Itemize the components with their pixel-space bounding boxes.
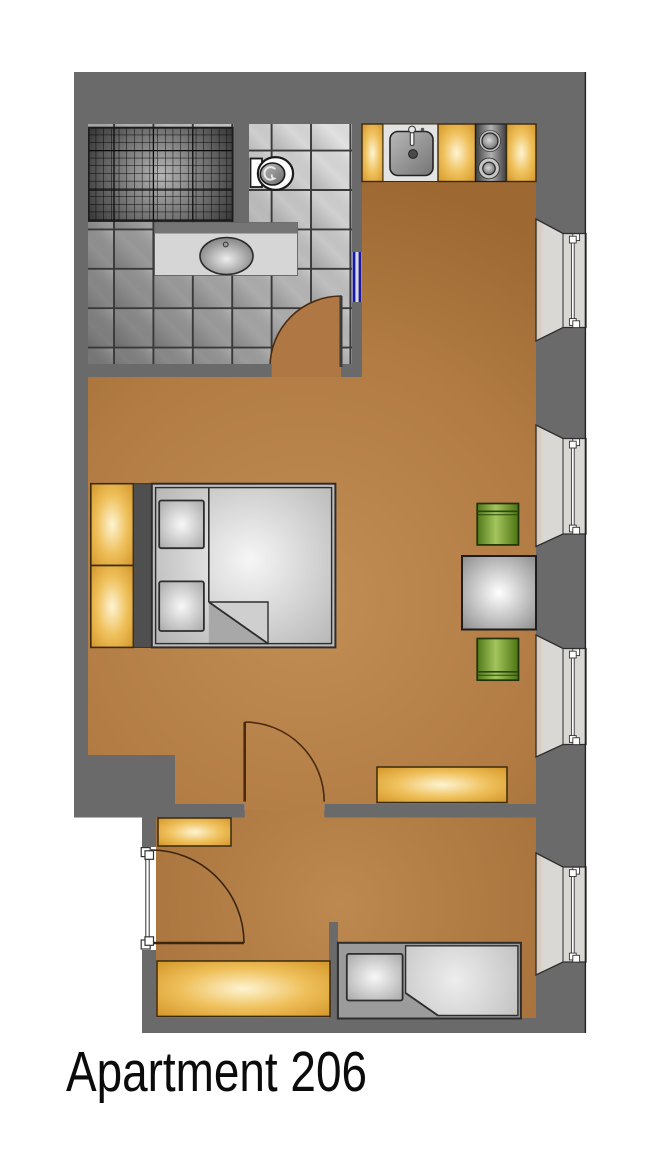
svg-text:Apartment 206: Apartment 206 <box>66 1040 367 1104</box>
